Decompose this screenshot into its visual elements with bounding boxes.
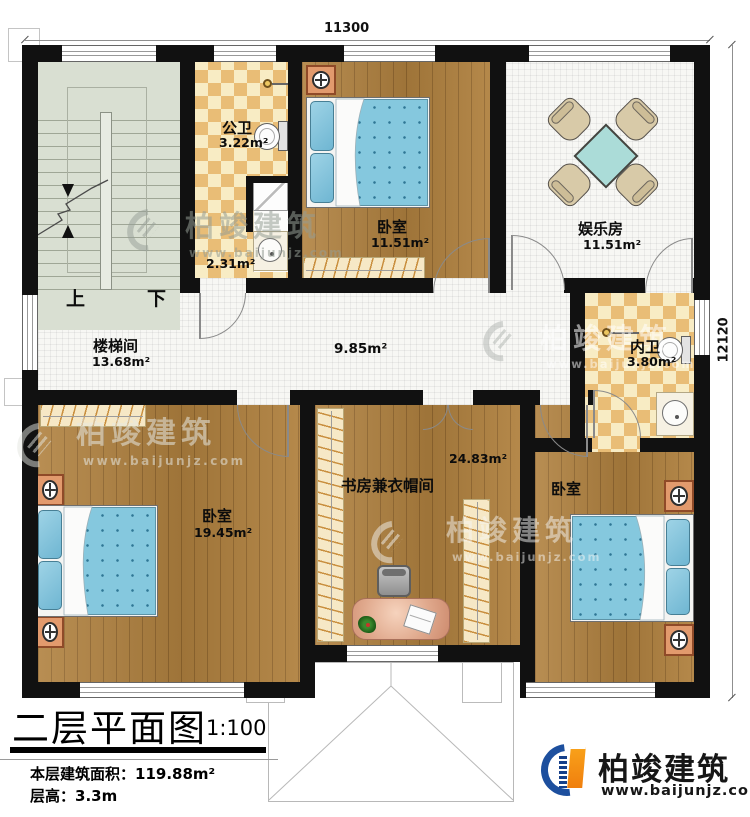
- room-area-bedroom-left: 19.45m²: [194, 526, 252, 540]
- room-area-public-bath: 3.22m²: [219, 136, 268, 150]
- watermark-text: 柏竣建筑: [446, 517, 578, 545]
- room-label-study: 书房兼衣帽间: [341, 478, 434, 495]
- stair-up-label: 上: [66, 289, 85, 310]
- company-logo-icon: [541, 740, 597, 798]
- bed-fold: [636, 516, 664, 620]
- logo-building-windows: [559, 756, 567, 788]
- plan-scale: 1:100: [206, 716, 267, 740]
- room-area-hall: 9.85m²: [334, 342, 387, 357]
- floor-area-label: 本层建筑面积：: [30, 765, 135, 783]
- floor-height-row: 层高：3.3m: [30, 785, 117, 806]
- watermark-text: 柏竣建筑: [185, 212, 321, 241]
- wall-segment: [564, 278, 645, 293]
- bed-fold: [336, 99, 364, 206]
- dimension-line-right: [732, 45, 733, 698]
- wall-segment: [276, 45, 344, 62]
- logo-swoosh: [531, 734, 604, 807]
- stair-up-arrow-icon: [62, 225, 74, 238]
- dimension-top-value: 11300: [324, 21, 369, 36]
- room-label-stairwell: 楼梯间: [93, 338, 138, 355]
- room-area-study: 24.83m²: [449, 452, 507, 466]
- watermark-text: 柏竣建筑: [76, 419, 216, 449]
- dimension-right-value: 12120: [717, 319, 732, 363]
- room-area-bedroom-top: 11.51m²: [371, 236, 429, 250]
- room-area-stairwell: 13.68m²: [92, 355, 150, 369]
- wall-segment: [694, 355, 710, 698]
- floor-height-value: 3.3m: [75, 787, 117, 805]
- room-area-entertainment: 11.51m²: [583, 238, 641, 252]
- window: [694, 300, 710, 355]
- room-area-ensuite: 3.80m²: [627, 355, 676, 369]
- wall-segment: [22, 390, 237, 405]
- stair-down-arrow-icon: [62, 184, 74, 197]
- wall-segment: [490, 45, 506, 278]
- floor-area-value: 119.88m²: [135, 765, 215, 783]
- watermark-url: www.baijunjz.com: [452, 552, 601, 564]
- brand-website: www.baijunjz.com: [601, 783, 750, 799]
- wall-segment: [288, 45, 302, 278]
- wall-segment: [435, 45, 529, 62]
- bed-fold: [64, 507, 92, 615]
- title-underline: [10, 747, 266, 753]
- room-area-small-bath: 2.31m²: [206, 257, 255, 271]
- dimension-line-top: [25, 40, 710, 41]
- wall-segment: [300, 390, 315, 698]
- plan-title: 二层平面图: [12, 698, 207, 752]
- window: [347, 645, 438, 662]
- wall-segment: [22, 370, 38, 698]
- wall-segment: [246, 278, 433, 293]
- window: [22, 295, 38, 370]
- floor-area-row: 本层建筑面积：119.88m²: [30, 763, 215, 784]
- window: [526, 682, 655, 698]
- window: [214, 45, 276, 62]
- window: [80, 682, 244, 698]
- wall-segment: [22, 45, 38, 295]
- room-label-bedroom-left: 卧室: [202, 508, 232, 525]
- window: [62, 45, 156, 62]
- room-label-bedroom-right: 卧室: [551, 481, 581, 498]
- wall-segment: [180, 45, 195, 278]
- wall-segment: [180, 278, 200, 293]
- title-divider: [0, 759, 278, 760]
- window: [344, 45, 435, 62]
- wall-segment: [490, 278, 506, 293]
- window: [529, 45, 670, 62]
- wall-segment: [694, 45, 710, 300]
- floor-height-label: 层高：: [30, 787, 75, 805]
- room-label-entertainment: 娱乐房: [578, 221, 623, 238]
- watermark-url: www.baijunjz.com: [83, 455, 246, 467]
- floor-plan-canvas: 公卫 3.22m² 2.31m² 卧室 11.51m² 娱乐房 11.51m² …: [0, 0, 750, 817]
- room-label-bedroom-top: 卧室: [377, 219, 407, 236]
- stair-down-label: 下: [147, 289, 166, 310]
